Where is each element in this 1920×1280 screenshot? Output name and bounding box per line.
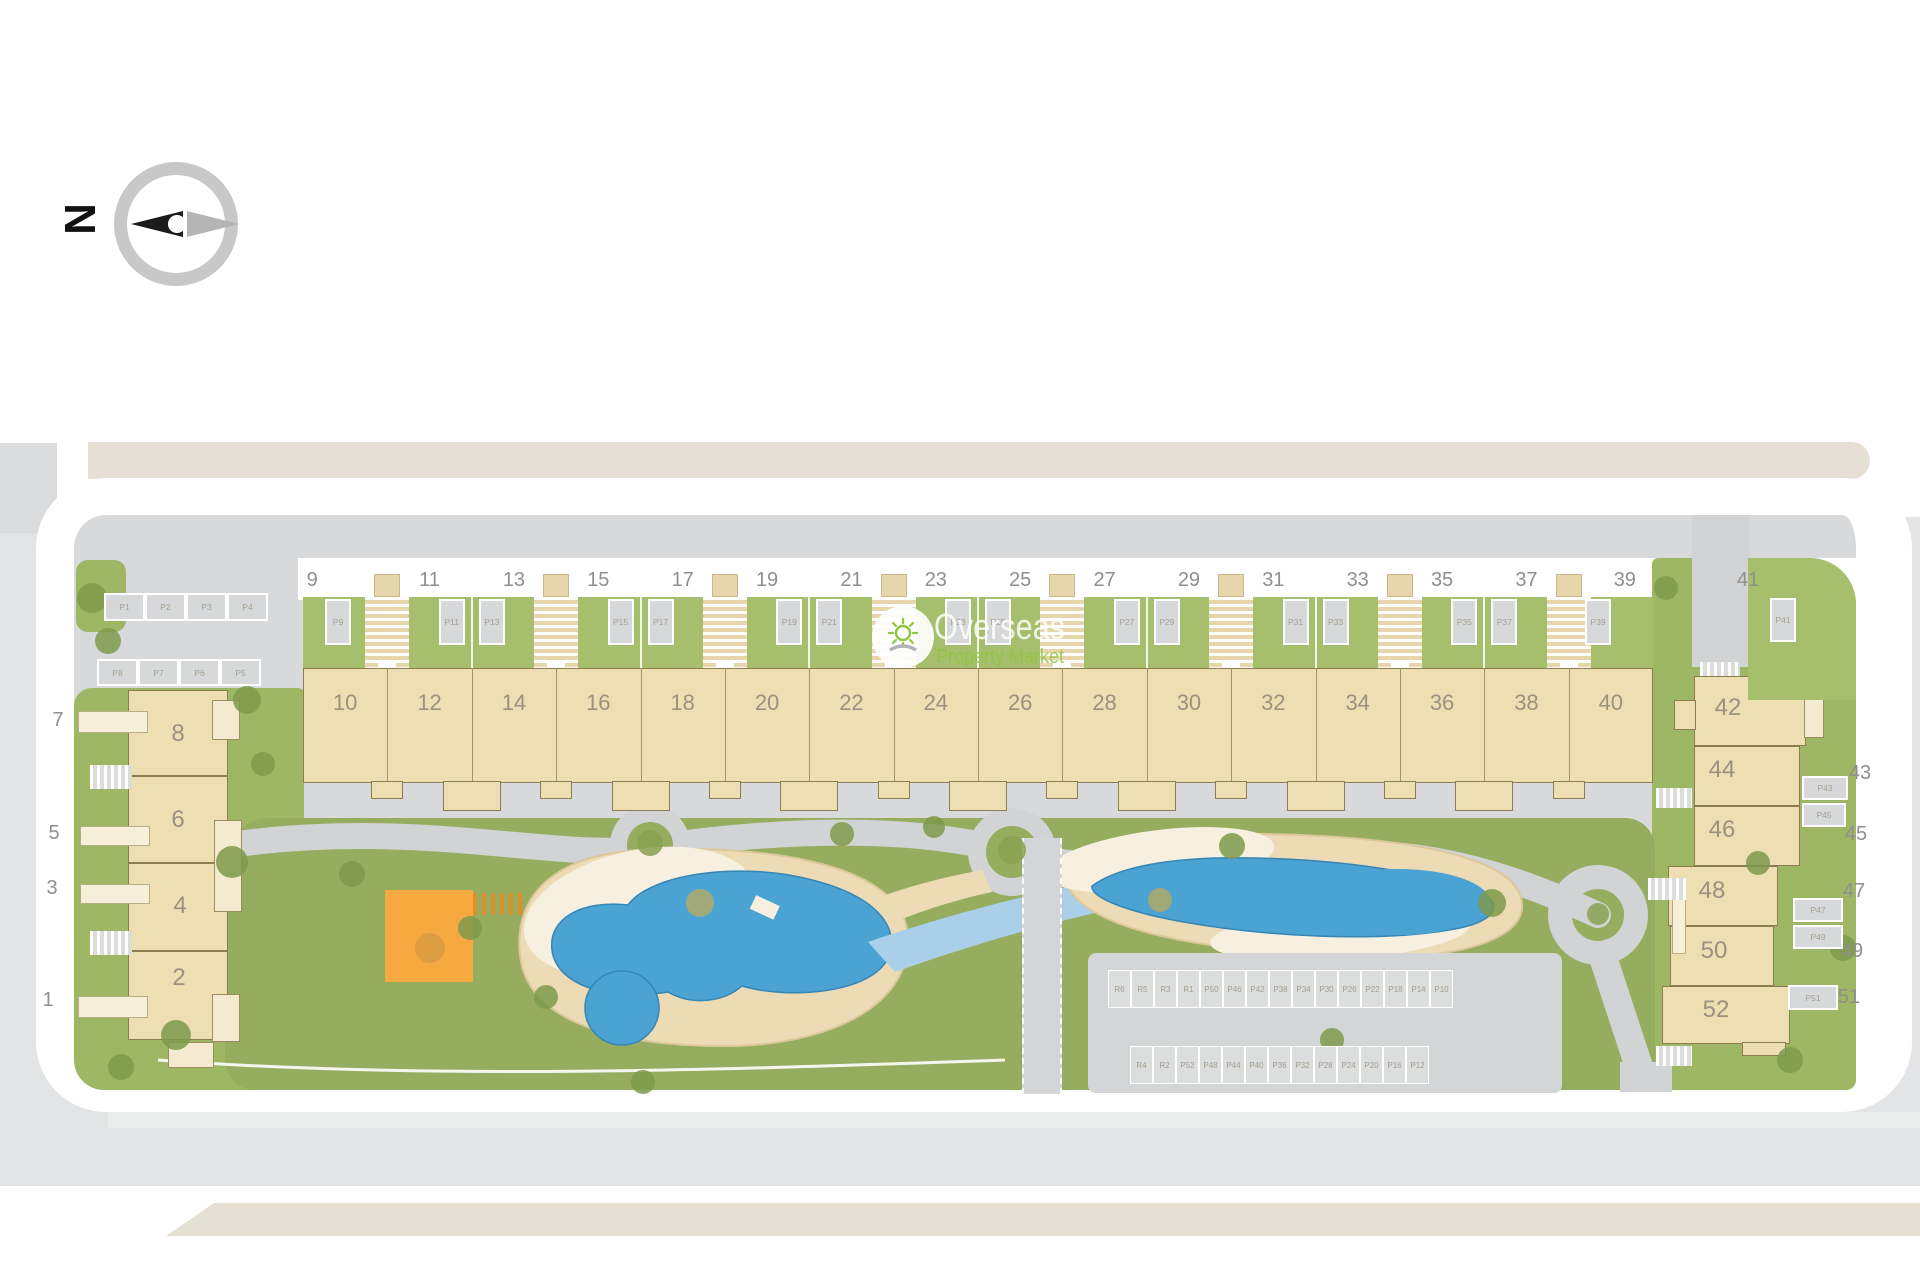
street-number: 39 (1603, 570, 1647, 590)
parking-space: P43 (1802, 776, 1848, 800)
watermark-tagline: Property Market (936, 646, 1064, 669)
unit-divider (809, 668, 810, 783)
street-number: 25 (998, 570, 1042, 590)
parking-space: P41 (1770, 598, 1796, 642)
parking-space: P50 (1200, 970, 1223, 1008)
street-number: 5 (34, 823, 74, 843)
entry-stub (1387, 574, 1413, 597)
rear-terrace (612, 781, 670, 811)
parking-space: P34 (1292, 970, 1315, 1008)
rear-step (1215, 781, 1247, 799)
rear-terrace (949, 781, 1007, 811)
parking-space: P4 (227, 593, 268, 621)
compass-rose: N (0, 0, 300, 320)
street-number: 3 (32, 878, 72, 898)
rear-terrace (443, 781, 501, 811)
unit-divider (1569, 668, 1570, 783)
watermark-brand: Overseas (934, 606, 1065, 648)
parking-space: P17 (648, 599, 674, 645)
parking-space: P7 (138, 659, 179, 686)
watermark: Overseas Property Market (872, 604, 1172, 684)
parking-space: P47 (1793, 898, 1843, 922)
rear-step (1553, 781, 1585, 799)
building-unit-number: 24 (910, 692, 962, 714)
building-unit-number: 44 (1692, 758, 1752, 782)
building-unit-number: 26 (994, 692, 1046, 714)
parking-space: P19 (776, 599, 802, 645)
entry-stub (881, 574, 907, 597)
parking-space: R6 (1108, 970, 1131, 1008)
parking-space: P32 (1291, 1046, 1314, 1084)
street-number: 19 (745, 570, 789, 590)
parking-space: P14 (1407, 970, 1430, 1008)
unit-divider (978, 668, 979, 783)
parking-space: P13 (479, 599, 505, 645)
parking-space: R5 (1131, 970, 1154, 1008)
entry-stub (1049, 574, 1075, 597)
building-unit-number: 18 (657, 692, 709, 714)
building-unit-number: 22 (825, 692, 877, 714)
street-number: 15 (576, 570, 620, 590)
parking-space: P1 (104, 593, 145, 621)
entry-stub (543, 574, 569, 597)
building-unit-number: 10 (319, 692, 371, 714)
street-number: 23 (914, 570, 958, 590)
parking-space: P5 (220, 659, 261, 686)
parking-space: P33 (1323, 599, 1349, 645)
unit-divider (1484, 668, 1485, 783)
unit-divider (1400, 668, 1401, 783)
street-number: 29 (1167, 570, 1211, 590)
parking-space: P30 (1315, 970, 1338, 1008)
building-unit-number: 46 (1692, 818, 1752, 842)
parking-space: R1 (1177, 970, 1200, 1008)
rear-terrace (1287, 781, 1345, 811)
street-number: 31 (1251, 570, 1295, 590)
parking-space: P9 (325, 599, 351, 645)
rear-terrace (780, 781, 838, 811)
unit-divider (1316, 668, 1317, 783)
parking-space: R4 (1130, 1046, 1153, 1084)
street-number: 35 (1420, 570, 1464, 590)
parking-space: P37 (1491, 599, 1517, 645)
parking-space: P15 (608, 599, 634, 645)
rear-step (540, 781, 572, 799)
parking-space: P44 (1222, 1046, 1245, 1084)
parking-space: P36 (1268, 1046, 1291, 1084)
parking-space: P51 (1788, 985, 1838, 1010)
parking-space: P3 (186, 593, 227, 621)
street-number: 9 (290, 570, 334, 590)
rear-step (371, 781, 403, 799)
parking-space: R2 (1153, 1046, 1176, 1084)
street-number: 7 (38, 710, 78, 730)
parking-space: P26 (1338, 970, 1361, 1008)
unit-divider (1147, 668, 1148, 783)
rear-step (1384, 781, 1416, 799)
entry-stub (374, 574, 400, 597)
building-unit-number: 2 (151, 966, 207, 990)
building-unit-number: 38 (1500, 692, 1552, 714)
compass-needle-east (187, 211, 239, 237)
building-unit-number: 8 (150, 722, 206, 746)
parking-space: P31 (1283, 599, 1309, 645)
parking-space: P39 (1585, 599, 1611, 645)
street-number: 21 (829, 570, 873, 590)
unit-divider (725, 668, 726, 783)
building-unit-number: 34 (1332, 692, 1384, 714)
building-unit-number: 14 (488, 692, 540, 714)
parking-space: P35 (1451, 599, 1477, 645)
unit-divider (1231, 668, 1232, 783)
street-number: 13 (492, 570, 536, 590)
building-unit-number: 52 (1686, 998, 1746, 1022)
parking-space: R3 (1154, 970, 1177, 1008)
rear-step (709, 781, 741, 799)
unit-divider (387, 668, 388, 783)
street-number: 11 (408, 570, 452, 590)
building-unit-number: 4 (152, 894, 208, 918)
rear-step (1046, 781, 1078, 799)
parking-space: P6 (179, 659, 220, 686)
rear-step (878, 781, 910, 799)
parking-space: P42 (1246, 970, 1269, 1008)
building-unit-number: 30 (1163, 692, 1215, 714)
parking-space: P28 (1314, 1046, 1337, 1084)
parking-space: P22 (1361, 970, 1384, 1008)
street-number: 1 (28, 990, 68, 1010)
parking-space: P20 (1360, 1046, 1383, 1084)
parking-space: P24 (1337, 1046, 1360, 1084)
unit-divider (1062, 668, 1063, 783)
sun-icon (882, 616, 924, 658)
building-unit-number: 20 (741, 692, 793, 714)
parking-space: P8 (97, 659, 138, 686)
unit-divider (556, 668, 557, 783)
rear-terrace (1455, 781, 1513, 811)
street-number: 41 (1726, 570, 1770, 590)
parking-space: P45 (1802, 803, 1846, 827)
entry-stub (1218, 574, 1244, 597)
street-number: 17 (661, 570, 705, 590)
unit-divider (894, 668, 895, 783)
parking-space: P2 (145, 593, 186, 621)
parking-space: P49 (1793, 925, 1843, 949)
parking-space: P52 (1176, 1046, 1199, 1084)
entry-stub (1556, 574, 1582, 597)
parking-space: P38 (1269, 970, 1292, 1008)
parking-space: P11 (439, 599, 465, 645)
parking-space: P40 (1245, 1046, 1268, 1084)
building-unit-number: 32 (1247, 692, 1299, 714)
building-unit-number: 28 (1079, 692, 1131, 714)
site-plan: N Overseas Property Market P11P13P15P17P… (0, 0, 1920, 1280)
street-number: 33 (1336, 570, 1380, 590)
building-unit-number: 36 (1416, 692, 1468, 714)
parking-space: P48 (1199, 1046, 1222, 1084)
parking-space: P21 (816, 599, 842, 645)
north-label: N (60, 196, 102, 242)
entry-stub (712, 574, 738, 597)
parking-space: P18 (1384, 970, 1407, 1008)
building-unit-number: 16 (572, 692, 624, 714)
building-unit-number: 12 (404, 692, 456, 714)
compass-hub (168, 215, 186, 233)
building-unit-number: 6 (150, 808, 206, 832)
building-unit-number: 42 (1698, 696, 1758, 720)
unit-divider (641, 668, 642, 783)
parking-space: P12 (1406, 1046, 1429, 1084)
street-number: 45 (1834, 824, 1878, 844)
building-unit-number: 50 (1684, 939, 1744, 963)
parking-space: P10 (1430, 970, 1453, 1008)
street-number: 27 (1083, 570, 1127, 590)
parking-space: P16 (1383, 1046, 1406, 1084)
parking-space: P46 (1223, 970, 1246, 1008)
building-unit-number: 48 (1682, 879, 1742, 903)
unit-divider (472, 668, 473, 783)
rear-terrace (1118, 781, 1176, 811)
building-unit-number: 40 (1585, 692, 1637, 714)
street-number: 37 (1504, 570, 1548, 590)
